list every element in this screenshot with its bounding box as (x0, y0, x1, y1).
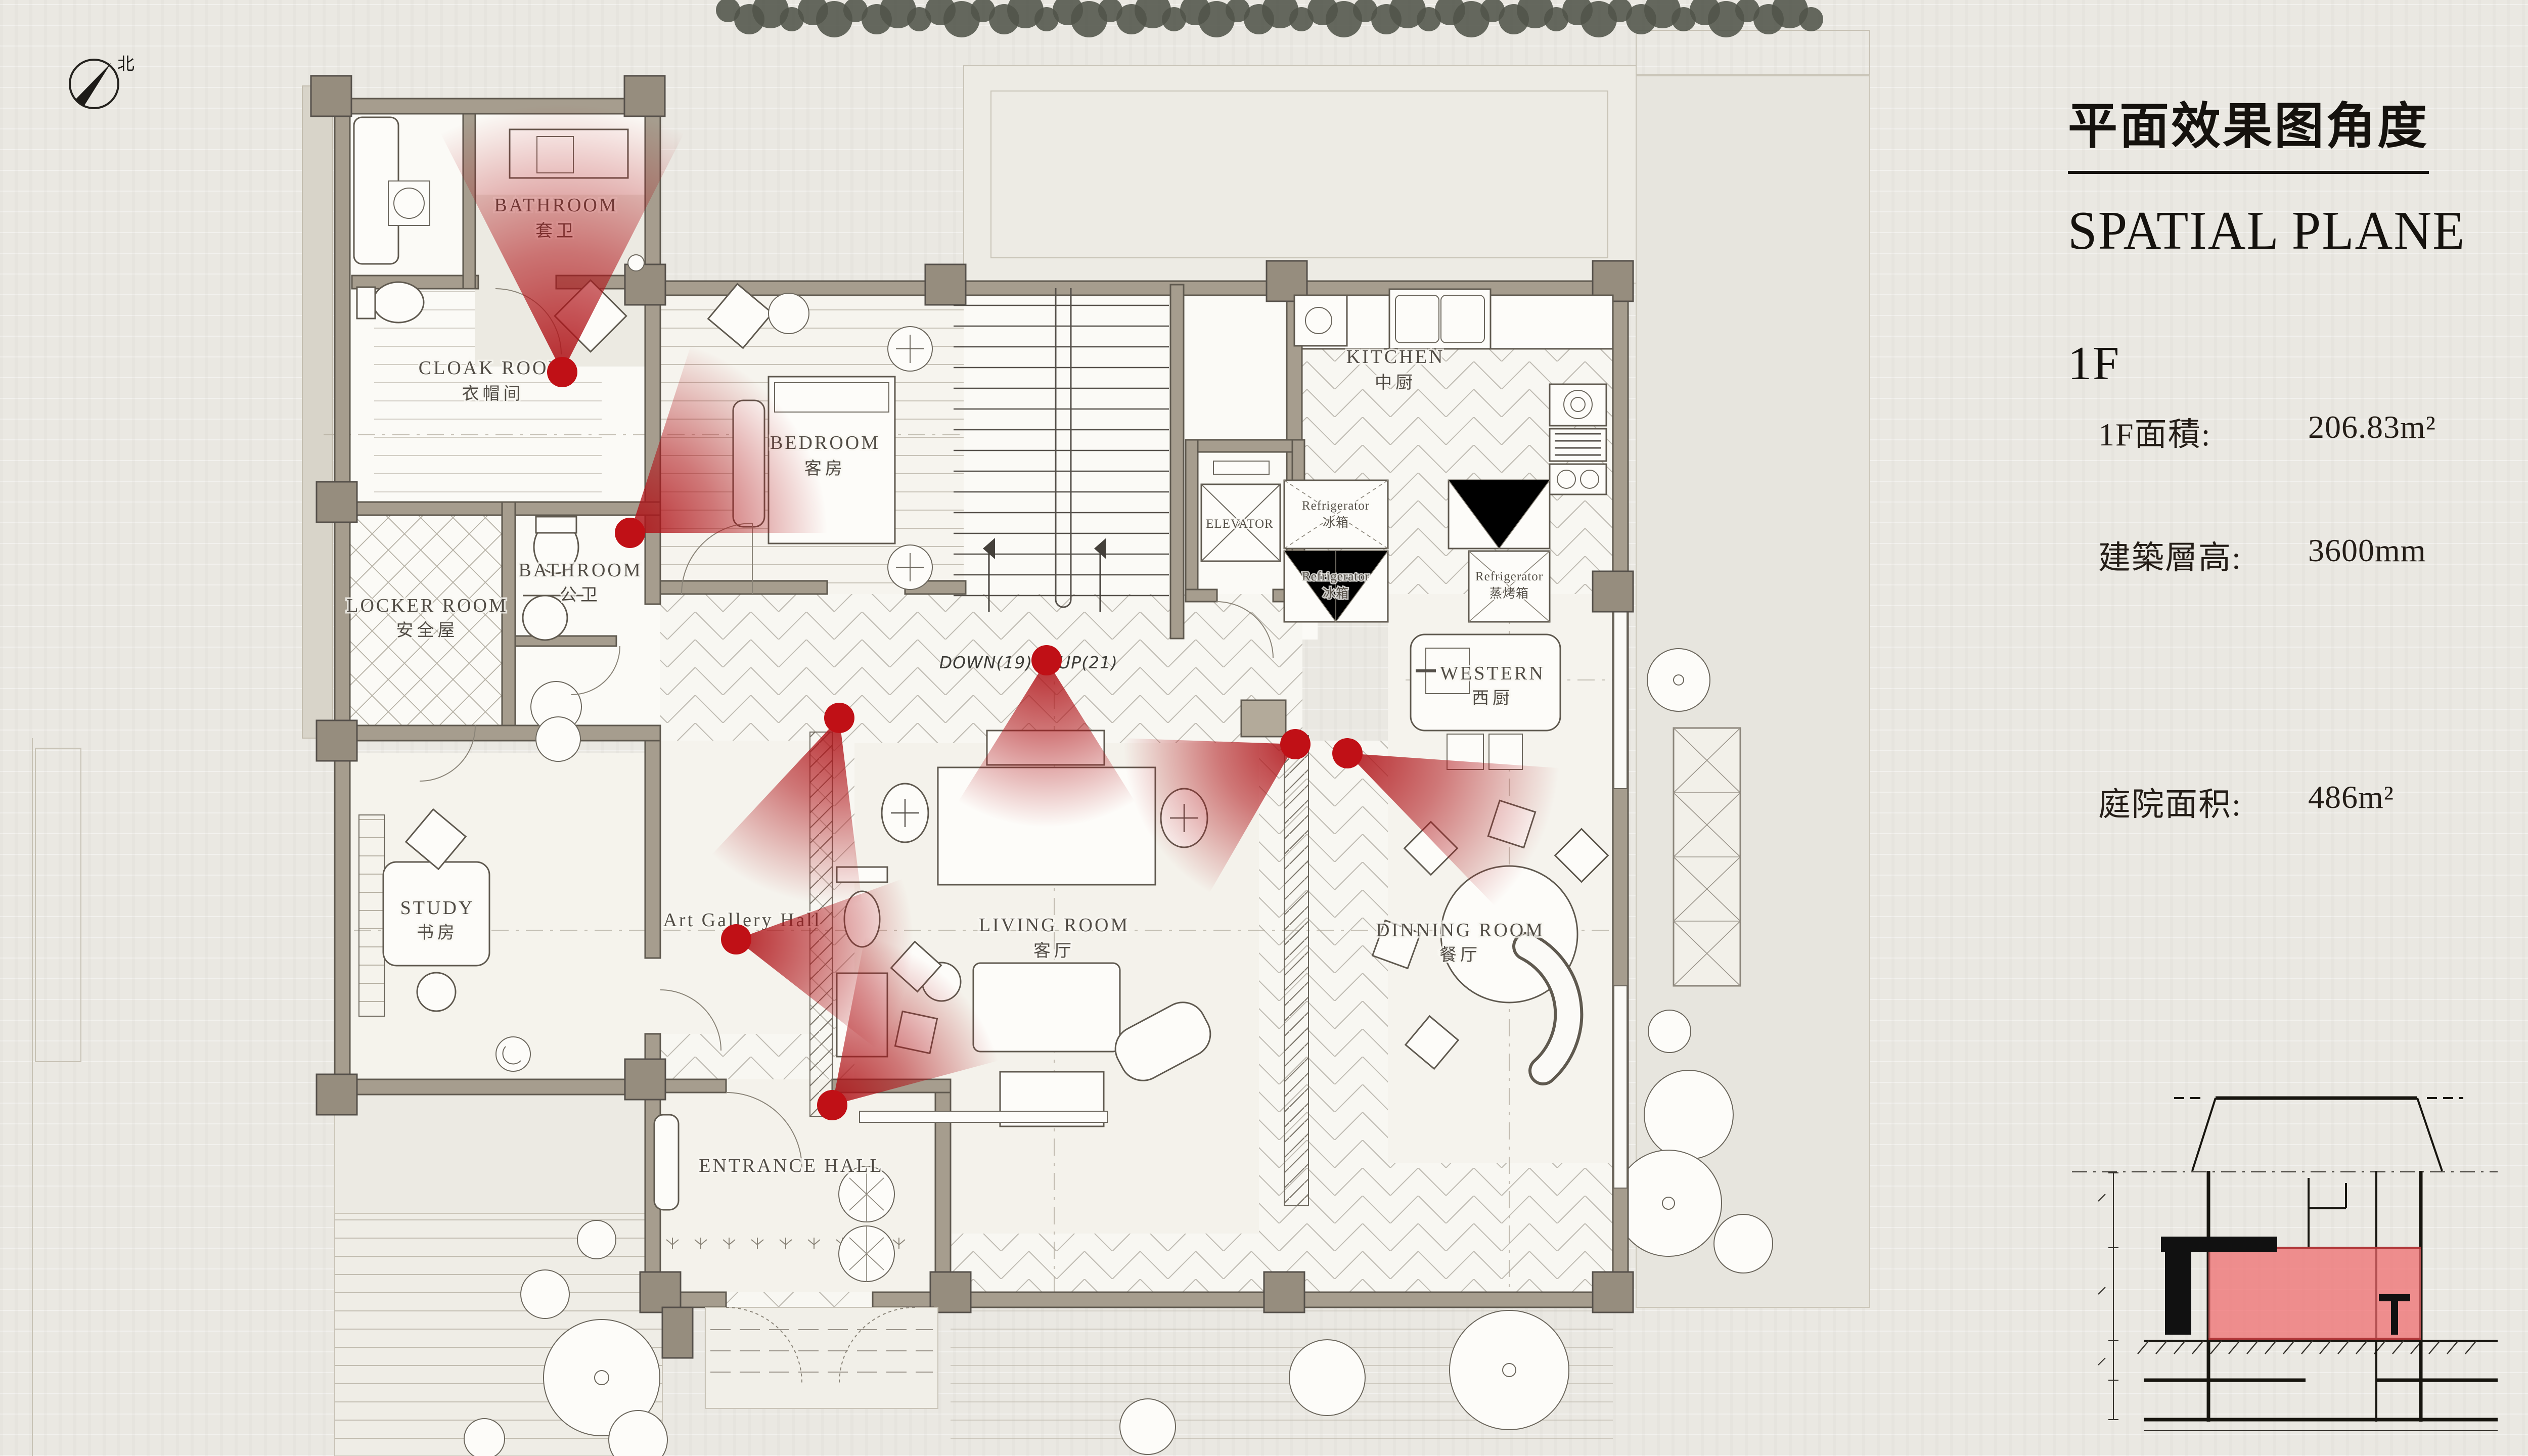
label-entrance: ENTRANCE HALL (699, 1155, 883, 1176)
info-value: 3600mm (2308, 532, 2426, 569)
label-dining-zh: 餐厅 (1439, 945, 1481, 965)
info-value: 206.83m² (2308, 408, 2436, 446)
info-row-courtyard: 庭院面积: 486m² (2098, 779, 2528, 825)
label-fridge-1: Refrigerator (1302, 499, 1370, 513)
hatch-tick (2465, 1341, 2476, 1354)
low-shelf (860, 1111, 1107, 1122)
patio-bottom (951, 1307, 1613, 1456)
side-table (769, 293, 809, 334)
label-fridge-1-zh: 冰箱 (1323, 516, 1349, 530)
label-bathroom-public: BATHROOM (518, 560, 642, 581)
toilet-tank (357, 287, 375, 318)
tree (1714, 1214, 1773, 1273)
hatch-tick (2429, 1341, 2440, 1354)
toilet-tank (536, 517, 576, 533)
pillows (775, 383, 889, 412)
label-fridge-3: Refrigerator (1475, 570, 1543, 583)
info-label: 庭院面积: (2098, 787, 2242, 823)
hatch-tick (2192, 1341, 2203, 1354)
label-kitchen: KITCHEN (1346, 346, 1445, 368)
window-bay (1614, 597, 1627, 789)
camera-dot (1280, 729, 1311, 759)
compass: 北 (70, 55, 134, 108)
dining-partition (1284, 736, 1308, 1206)
hatch-tick (2392, 1341, 2404, 1354)
camera-dot (824, 703, 854, 733)
hatch-tick (2210, 1341, 2222, 1354)
hatch-tick (2156, 1341, 2167, 1354)
ground-hatch (2138, 1341, 2476, 1354)
hatch-tick (2301, 1341, 2313, 1354)
hatch-tick (2356, 1341, 2367, 1354)
label-elevator: ELEVATOR (1206, 517, 1273, 531)
hatch-tick (2283, 1341, 2294, 1354)
section-diagram (2072, 1098, 2498, 1431)
label-cloak-zh: 衣帽间 (462, 384, 524, 403)
elevator-door (1213, 461, 1269, 474)
hatch-tick (2265, 1341, 2276, 1354)
compass-needle (76, 63, 111, 106)
label-dining: DINNING ROOM (1376, 920, 1545, 941)
locker-floor (350, 516, 502, 725)
hatch-tick (2447, 1341, 2458, 1354)
hatch-tick (2229, 1341, 2240, 1354)
camera-dot (817, 1090, 847, 1120)
label-locker: LOCKER ROOM (346, 595, 508, 616)
label-study: STUDY (400, 897, 475, 919)
tree (1648, 1010, 1691, 1053)
page: BATHROOM 套卫 CLOAK ROOM 衣帽间 BEDROOM 客房 LO… (0, 0, 2528, 1456)
label-living: LIVING ROOM (979, 915, 1130, 936)
washer (536, 717, 580, 761)
label-locker-zh: 安全屋 (396, 621, 459, 640)
deck-bottom-left (335, 1213, 667, 1456)
entry-steps (705, 1307, 938, 1408)
hatch-tick (2247, 1341, 2258, 1354)
toilet (373, 282, 424, 323)
hatch-tick (2174, 1341, 2185, 1354)
roof-outline (964, 66, 1636, 283)
info-label: 建築層高: (2098, 540, 2242, 576)
page-subtitle: SPATIAL PLANE (2068, 200, 2465, 262)
camera-dot (1031, 645, 1062, 675)
tree (464, 1419, 505, 1456)
hatch-tick (2320, 1341, 2331, 1354)
label-cloak: CLOAK ROOM (419, 357, 567, 379)
camera-dot (1332, 738, 1363, 768)
stool (496, 1037, 530, 1071)
camera-dot (615, 518, 645, 548)
tree (521, 1270, 569, 1318)
page-title: 平面效果图角度 (2068, 86, 2429, 174)
info-row-area: 1F面積: 206.83m² (2098, 408, 2528, 455)
label-fridge-3-zh: 蒸烤箱 (1489, 586, 1529, 601)
label-western: WESTERN (1440, 663, 1545, 684)
label-study-zh: 书房 (417, 923, 458, 942)
camera-dot (547, 357, 577, 387)
hatch-tick (2138, 1341, 2149, 1354)
label-living-zh: 客厅 (1033, 941, 1075, 961)
tree-hedge-band (716, 0, 1823, 37)
info-label: 1F面積: (2098, 417, 2211, 452)
label-fridge-2: Refrigerator (1302, 570, 1370, 583)
refrigerator-1 (1284, 480, 1388, 549)
bookshelf (359, 815, 384, 1016)
label-stairs-down: DOWN(19) (939, 653, 1032, 672)
section-1f-highlight (2208, 1248, 2421, 1339)
tree (1289, 1340, 1365, 1416)
tree (1644, 1070, 1733, 1159)
label-western-zh: 西厨 (1472, 689, 1513, 708)
cabinet-column (1241, 700, 1286, 737)
window-bay (1614, 986, 1627, 1188)
coffee-table (973, 963, 1120, 1052)
info-row-height: 建築層高: 3600mm (2098, 532, 2528, 578)
label-fridge-2-zh: 冰箱 (1323, 586, 1349, 601)
tree (1120, 1399, 1176, 1454)
compass-north-label: 北 (117, 55, 134, 74)
camera-dot (721, 924, 751, 954)
label-kitchen-zh: 中厨 (1375, 373, 1416, 392)
desk-chair (417, 973, 456, 1011)
console-table (654, 1115, 679, 1210)
info-value: 486m² (2308, 779, 2394, 816)
drain (628, 255, 644, 271)
label-bathroom-public-zh: 公卫 (560, 586, 601, 605)
label-stairs-up: UP(21) (1058, 653, 1118, 672)
tree (577, 1220, 616, 1259)
floor-tag: 1F (2068, 336, 2120, 391)
hatch-tick (2338, 1341, 2349, 1354)
hedge-tree (1799, 7, 1823, 31)
